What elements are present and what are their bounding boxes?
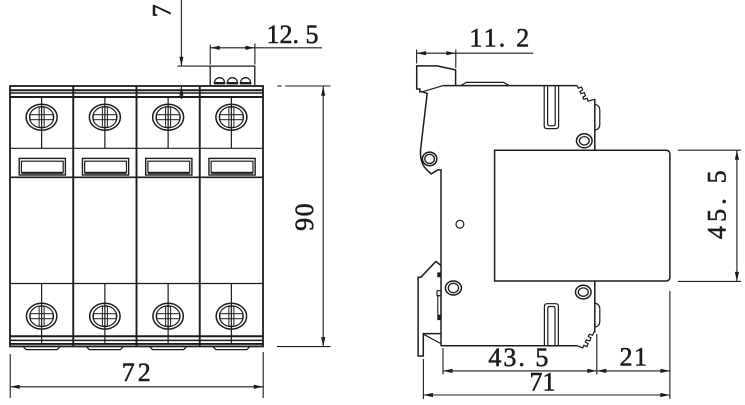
- svg-text:11. 2: 11. 2: [469, 23, 531, 52]
- svg-text:71: 71: [530, 368, 556, 397]
- svg-text:21: 21: [620, 342, 649, 371]
- svg-text:72: 72: [122, 358, 154, 387]
- svg-text:7: 7: [148, 4, 177, 17]
- svg-text:45. 5: 45. 5: [703, 166, 732, 239]
- svg-text:12. 5: 12. 5: [267, 20, 319, 49]
- svg-text:90: 90: [290, 202, 319, 231]
